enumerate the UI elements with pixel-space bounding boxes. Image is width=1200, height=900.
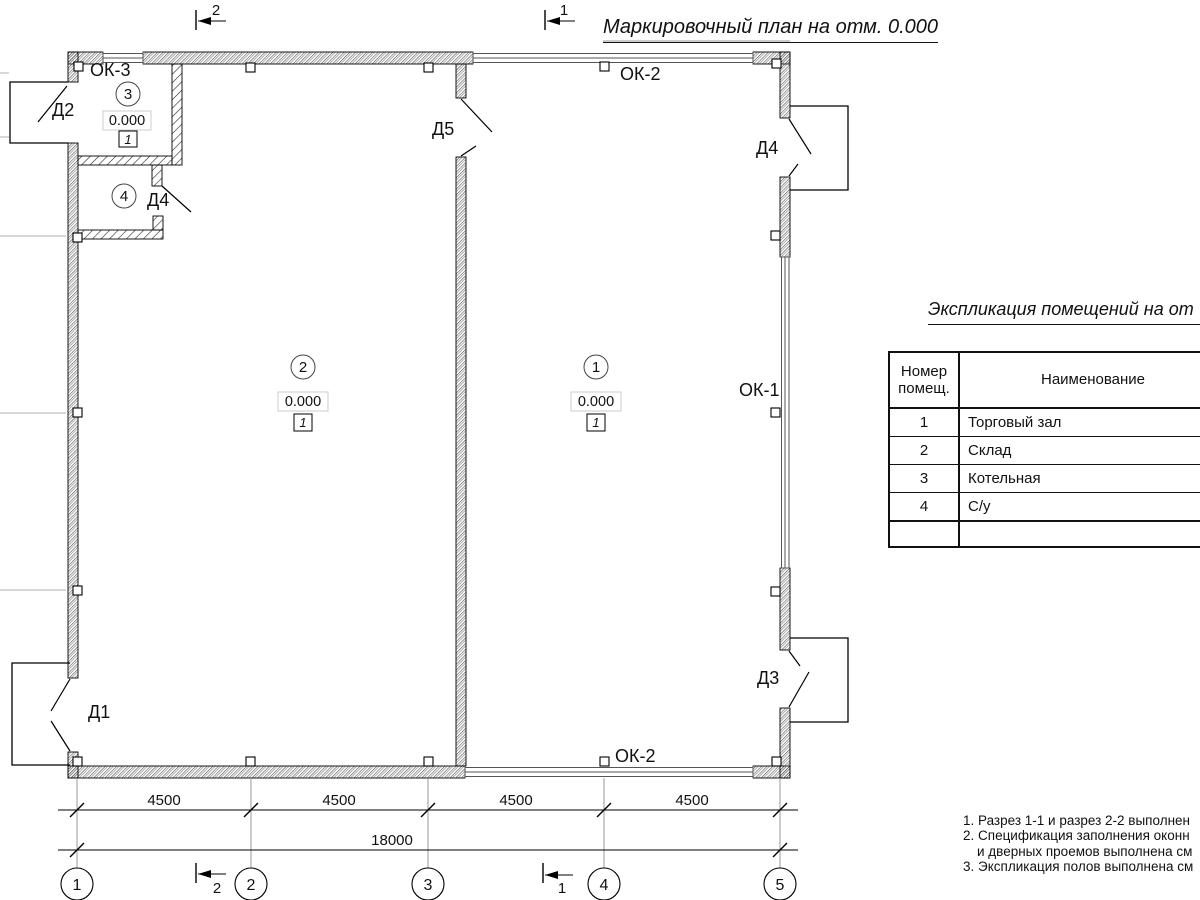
note-line: 1. Разрез 1-1 и разрез 2-2 выполнен <box>963 813 1200 828</box>
schedule-cell-name <box>959 521 1200 547</box>
door-d1-label: Д1 <box>88 702 110 722</box>
window-ok2-top <box>473 52 753 64</box>
schedule-header-number-line1: Номер <box>901 363 947 380</box>
drawing-title: Маркировочный план на отм. 0.000 <box>603 16 938 43</box>
schedule-empty-row <box>889 521 1200 547</box>
note-line: 2. Спецификация заполнения оконн <box>963 828 1200 843</box>
dim-bay-3: 4500 <box>499 792 532 809</box>
schedule-row: 1 Торговый зал <box>889 408 1200 437</box>
schedule-cell-name: Котельная <box>959 465 1200 493</box>
room-4-number: 4 <box>120 188 128 205</box>
schedule-row: 2 Склад <box>889 437 1200 465</box>
schedule-cell-number: 2 <box>889 437 959 465</box>
schedule-row: 4 С/у <box>889 493 1200 522</box>
window-ok2-bottom <box>465 766 753 778</box>
note-line: и дверных проемов выполнена см <box>963 844 1200 859</box>
door-d1 <box>51 679 70 751</box>
section-mark-2-bottom-label: 2 <box>213 880 221 897</box>
room-2-elevation: 0.000 <box>285 394 321 410</box>
door-d4-label: Д4 <box>756 138 778 158</box>
entrance-porches <box>10 82 848 765</box>
axis-bubble-5: 5 <box>776 877 785 894</box>
room-1-floor-type: 1 <box>592 415 599 430</box>
window-ok2-top-label: ОК-2 <box>620 64 661 84</box>
schedule-cell-number: 1 <box>889 408 959 437</box>
door-d5 <box>461 99 492 156</box>
room-3-number: 3 <box>124 86 132 103</box>
door-d4-interior-label: Д4 <box>147 190 169 210</box>
schedule-cell-name: Склад <box>959 437 1200 465</box>
room-schedule: Номер помещ. Наименование 1 Торговый зал… <box>888 351 1200 548</box>
interior-wall <box>456 64 466 766</box>
general-notes: 1. Разрез 1-1 и разрез 2-2 выполнен 2. С… <box>963 813 1200 875</box>
schedule-cell-name: Торговый зал <box>959 408 1200 437</box>
axis-bubble-1: 1 <box>73 877 82 894</box>
door-d3-label: Д3 <box>757 668 779 688</box>
dim-total: 18000 <box>371 832 413 849</box>
room-2-number: 2 <box>299 359 307 376</box>
window-ok1 <box>780 257 790 568</box>
room-3-floor-type: 1 <box>124 132 131 147</box>
door-d5-label: Д5 <box>432 119 454 139</box>
axis-bubble-2: 2 <box>247 877 256 894</box>
axis-bubble-3: 3 <box>424 877 433 894</box>
window-ok2-bottom-label: ОК-2 <box>615 746 656 766</box>
room-1-number: 1 <box>592 359 600 376</box>
schedule-row: 3 Котельная <box>889 465 1200 493</box>
dim-bay-4: 4500 <box>675 792 708 809</box>
door-d4 <box>789 119 811 176</box>
schedule-cell-name: С/у <box>959 493 1200 522</box>
door-d2-label: Д2 <box>52 100 74 120</box>
schedule-cell-number: 4 <box>889 493 959 522</box>
section-mark-1-bottom-label: 1 <box>558 880 566 897</box>
note-line: 3. Экспликация полов выполнена см <box>963 859 1200 874</box>
door-d3 <box>789 651 809 707</box>
room-2-annotation: 2 0.000 1 <box>278 355 328 431</box>
dim-bay-1: 4500 <box>147 792 180 809</box>
section-mark-1-top-label: 1 <box>560 2 568 19</box>
room-2-floor-type: 1 <box>299 415 306 430</box>
room-1-annotation: 1 0.000 1 <box>571 355 621 431</box>
section-mark-2-top-label: 2 <box>212 2 220 19</box>
schedule-header-name: Наименование <box>959 352 1200 408</box>
schedule-header-number-line2: помещ. <box>898 380 950 397</box>
schedule-cell-number: 3 <box>889 465 959 493</box>
room-1-elevation: 0.000 <box>578 394 614 410</box>
room-4-annotation: 4 <box>112 184 136 208</box>
room-3-annotation: 3 0.000 1 <box>103 82 151 147</box>
section-mark-2-bottom <box>196 863 226 883</box>
room-3-elevation: 0.000 <box>109 113 145 129</box>
dim-bay-2: 4500 <box>322 792 355 809</box>
schedule-header-number: Номер помещ. <box>889 352 959 408</box>
schedule-cell-number <box>889 521 959 547</box>
window-ok3-label: ОК-3 <box>90 60 131 80</box>
axis-bubble-4: 4 <box>600 877 609 894</box>
window-ok1-label: ОК-1 <box>739 380 780 400</box>
schedule-header-row: Номер помещ. Наименование <box>889 352 1200 408</box>
room-schedule-title: Экспликация помещений на от <box>928 299 1200 325</box>
